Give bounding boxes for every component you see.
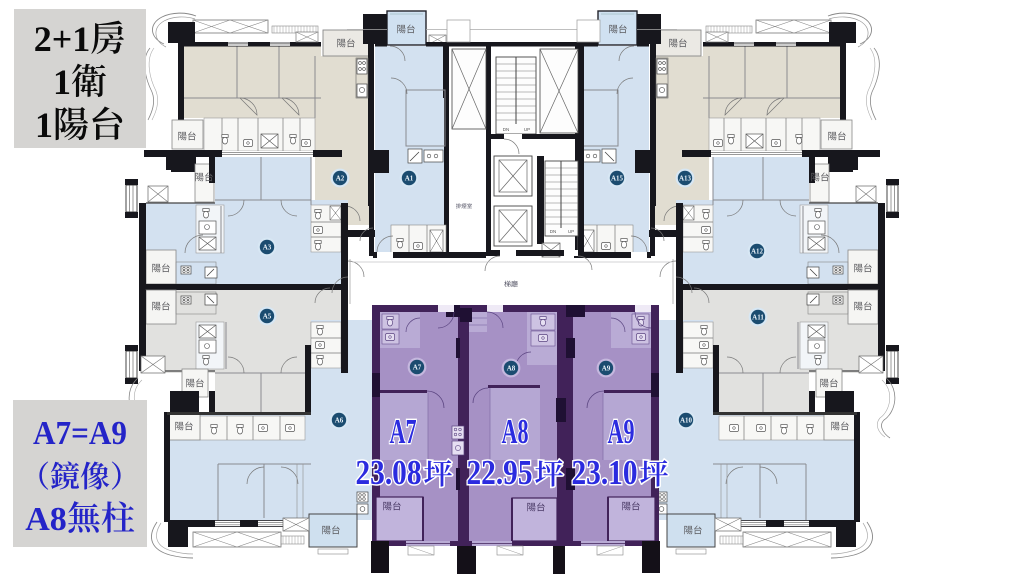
svg-text:A3: A3 bbox=[263, 244, 272, 252]
svg-text:A15: A15 bbox=[611, 175, 624, 183]
svg-text:A1: A1 bbox=[405, 175, 414, 183]
svg-text:A9: A9 bbox=[608, 412, 635, 451]
svg-text:23.10: 23.10 bbox=[572, 453, 638, 492]
svg-text:DN: DN bbox=[550, 229, 557, 234]
svg-text:A5: A5 bbox=[263, 313, 272, 321]
svg-text:A11: A11 bbox=[752, 314, 764, 322]
svg-text:A9: A9 bbox=[602, 365, 611, 373]
svg-text:22.95: 22.95 bbox=[467, 453, 533, 492]
svg-text:DN: DN bbox=[503, 127, 510, 132]
svg-text:A2: A2 bbox=[336, 175, 345, 183]
svg-text:A7=A9: A7=A9 bbox=[33, 415, 127, 452]
svg-text:UP: UP bbox=[568, 229, 574, 234]
svg-text:A10: A10 bbox=[680, 417, 693, 425]
svg-text:2+1: 2+1 bbox=[34, 19, 91, 59]
svg-text:A13: A13 bbox=[679, 175, 692, 183]
svg-text:1: 1 bbox=[53, 62, 71, 102]
svg-text:A6: A6 bbox=[335, 417, 344, 425]
svg-text:23.08: 23.08 bbox=[356, 453, 422, 492]
svg-text:A8: A8 bbox=[507, 365, 516, 373]
svg-text:1: 1 bbox=[35, 105, 53, 145]
svg-text:UP: UP bbox=[524, 127, 530, 132]
svg-text:A8: A8 bbox=[25, 501, 67, 538]
svg-text:A8: A8 bbox=[502, 412, 529, 451]
svg-text:A7: A7 bbox=[390, 412, 417, 451]
svg-text:A12: A12 bbox=[751, 248, 764, 256]
svg-text:A7: A7 bbox=[413, 364, 422, 372]
